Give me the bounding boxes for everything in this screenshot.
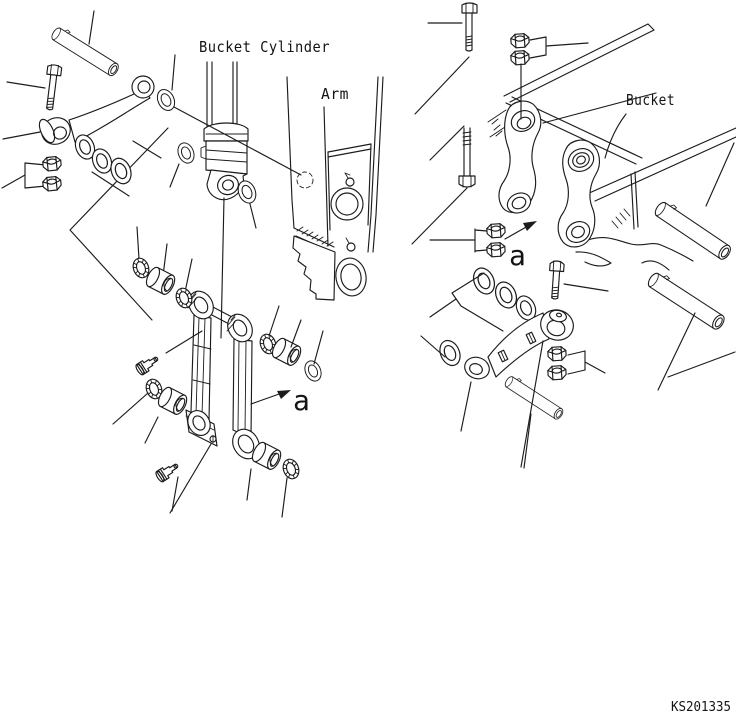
label-bucket: Bucket	[626, 91, 675, 109]
label-bucket-cylinder: Bucket Cylinder	[199, 38, 330, 56]
nut-link-1	[487, 223, 506, 238]
parts-diagram: a	[0, 0, 736, 717]
section-marker-bucket: a	[509, 239, 526, 272]
label-arm: Arm	[321, 85, 349, 103]
drawing-canvas: a	[0, 0, 736, 717]
nut-rod-1	[548, 346, 567, 361]
nut-right-top-1	[511, 33, 530, 48]
nut-link-2	[487, 242, 506, 257]
drawing-number: KS201335	[671, 700, 731, 715]
section-marker-idler: a	[293, 384, 310, 417]
nut-right-top-2	[511, 50, 530, 65]
nut-rod-2	[548, 365, 567, 380]
